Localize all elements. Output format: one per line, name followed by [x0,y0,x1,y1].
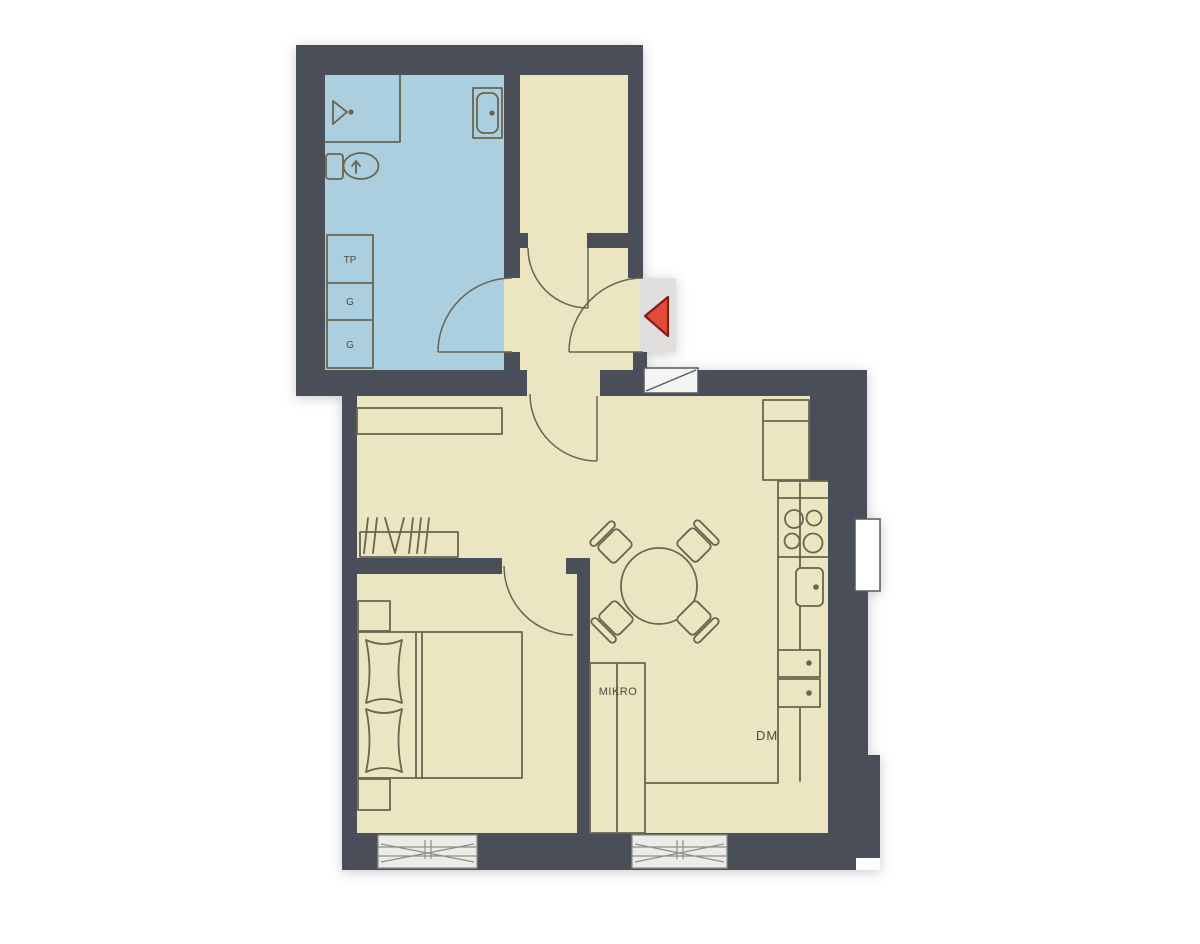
window-bedroom [378,835,477,868]
dishwasher-symbol [778,679,820,707]
label-dm: DM [756,728,778,743]
wall-right-e [828,755,880,833]
wall-main-left [342,396,357,870]
wall-bathroom-bottom [296,370,527,396]
label-mikro: MIKRO [599,686,638,698]
toilet-symbol [326,153,379,179]
entry-hall-floor [504,248,643,372]
hallway-floor [520,75,628,248]
wall-bedroom-vertical [577,558,590,833]
label-g-2: G [346,340,354,351]
wall-left-upper [296,75,325,372]
sink-symbol [796,568,823,606]
floor-plan: TP G G [0,0,1200,944]
wall-top [296,45,643,75]
washbasin-symbol [473,88,502,138]
oven-symbol [778,650,820,677]
wall-kitchen-top [600,370,867,396]
wall-corner-notch [856,858,880,870]
living-door-gap-floor [527,370,600,396]
wall-right-c [828,523,856,587]
wall-divider-stub [504,352,520,372]
wall-right-a [810,396,867,481]
wall-bedroom-horizontal [357,558,502,574]
label-tp: TP [344,255,357,266]
wall-hall-door-stub-right [587,233,643,248]
wall-recess-notch [855,519,880,591]
window-living-room [632,835,727,868]
label-g-1: G [346,297,354,308]
wall-right-d [828,587,868,755]
wall-hall-door-stub-left [504,233,528,248]
wall-right-b [828,481,867,523]
